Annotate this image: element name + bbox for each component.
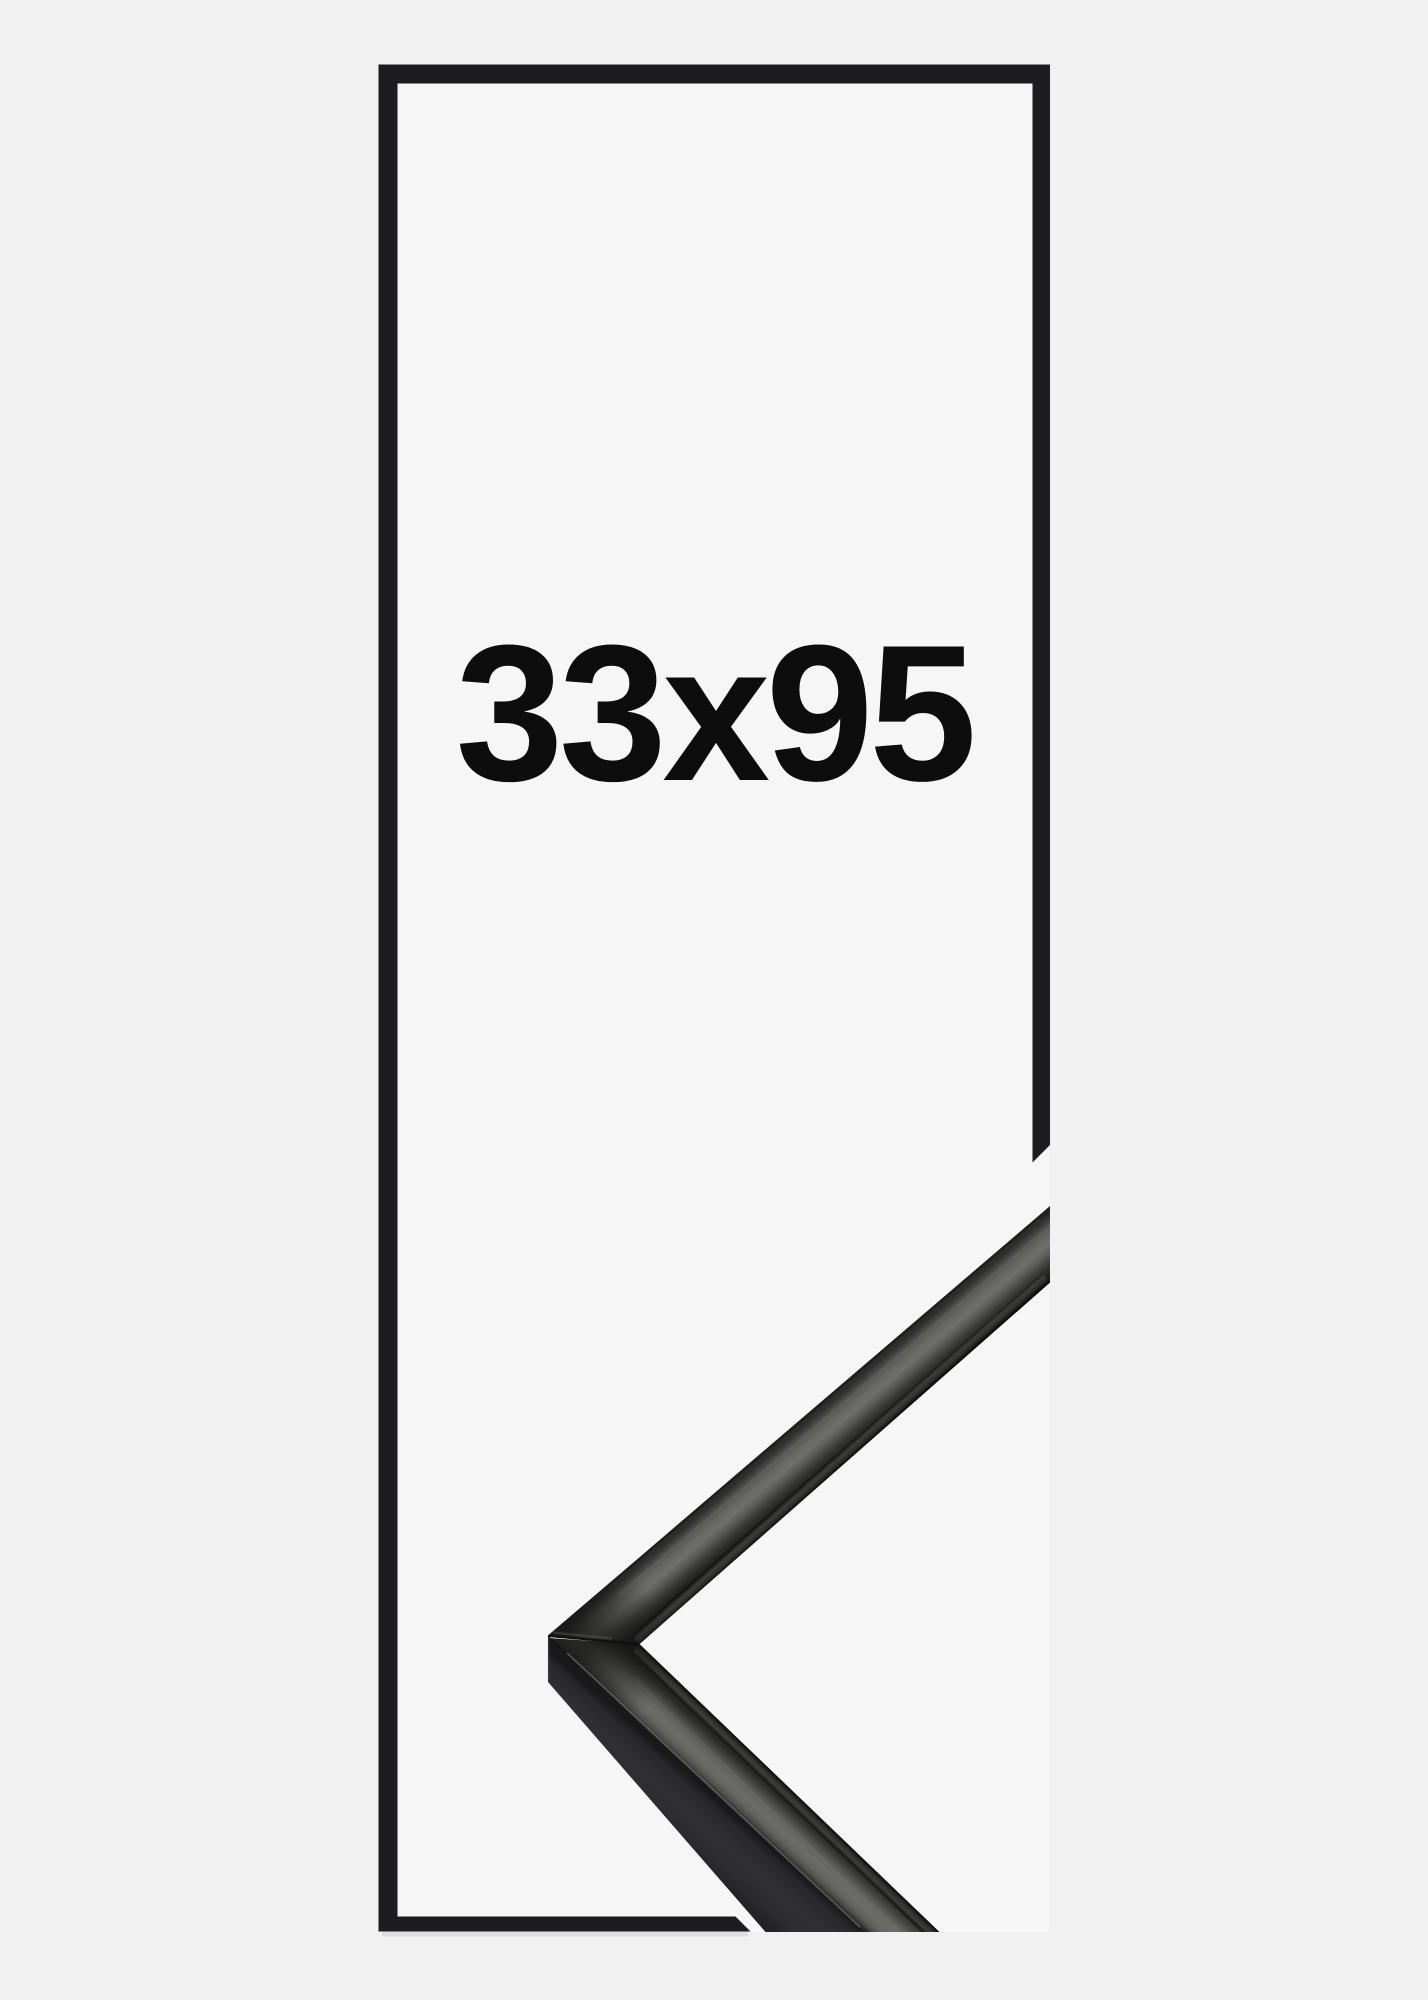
svg-text:33x95: 33x95 [456,605,973,822]
